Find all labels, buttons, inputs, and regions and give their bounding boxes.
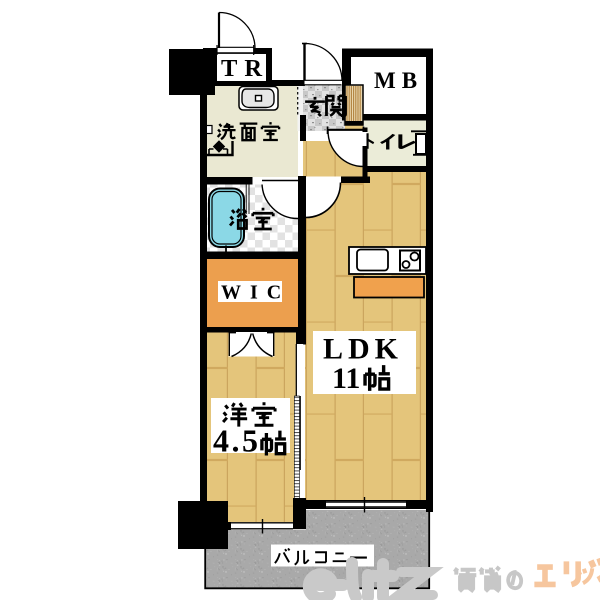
svg-text:4.5: 4.5 (213, 423, 261, 459)
svg-text:MB: MB (374, 68, 423, 93)
svg-text:LDK: LDK (323, 333, 403, 366)
svg-text:11: 11 (332, 362, 360, 395)
svg-text:TR: TR (221, 55, 269, 82)
svg-text:WIC: WIC (221, 282, 290, 304)
